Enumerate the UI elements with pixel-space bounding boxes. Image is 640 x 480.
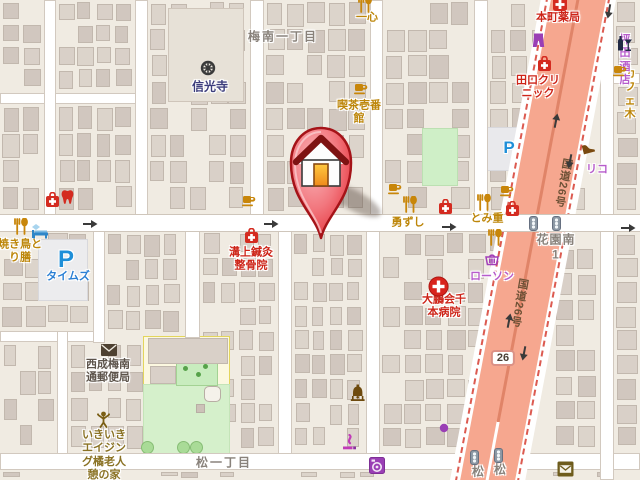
building [204, 233, 220, 254]
road [366, 231, 380, 454]
building [241, 428, 254, 448]
building [259, 332, 274, 351]
building [617, 405, 638, 425]
building [407, 161, 423, 184]
building [312, 379, 327, 397]
building [295, 330, 308, 349]
building [170, 161, 186, 183]
building [313, 283, 328, 301]
building [115, 107, 131, 127]
building [447, 379, 465, 398]
clinic-icon [504, 201, 521, 222]
road [185, 231, 200, 338]
building [97, 134, 110, 158]
building [294, 282, 308, 300]
building [146, 285, 160, 305]
restaurant-icon [356, 0, 373, 18]
post2-icon [557, 461, 574, 480]
building [330, 405, 342, 425]
building [4, 345, 16, 366]
building [313, 331, 325, 351]
building [408, 55, 427, 76]
arrow-icon [263, 216, 279, 234]
tooth-icon [60, 189, 75, 211]
restaurant-icon [475, 194, 492, 216]
building [425, 404, 441, 422]
building [24, 69, 41, 85]
building [386, 56, 402, 79]
building [408, 82, 427, 105]
building [295, 428, 307, 445]
area-hanazono-minami: 花園南 1 [536, 232, 575, 261]
building [617, 188, 636, 210]
signal-icon [470, 450, 479, 470]
signal-icon [494, 448, 503, 468]
pharmacy-icon [552, 0, 568, 17]
building [340, 472, 355, 477]
road [93, 231, 105, 343]
building [70, 306, 88, 324]
building [617, 163, 637, 185]
building [230, 135, 246, 158]
building [38, 399, 54, 421]
building [510, 30, 526, 51]
building [59, 107, 73, 131]
building [145, 310, 161, 329]
building [126, 311, 140, 330]
building [426, 330, 442, 350]
clothes-icon [531, 32, 546, 53]
building [296, 403, 310, 422]
building [203, 258, 219, 275]
building [429, 82, 448, 103]
building [578, 426, 595, 447]
building [38, 346, 51, 370]
building [386, 83, 404, 106]
building [405, 429, 421, 448]
building [116, 4, 131, 21]
building [3, 25, 19, 41]
building [347, 354, 362, 371]
building [330, 379, 343, 399]
building [348, 259, 363, 277]
building [618, 138, 639, 157]
road [278, 231, 292, 454]
landuse-area [203, 364, 208, 369]
building [404, 330, 421, 349]
building [426, 379, 445, 399]
area-umeminami-1chome: 梅南一丁目 [248, 30, 318, 45]
label-ikiiki-aging-tachibana-home: いきいき エイジン グ橘老人 憩の家 [82, 429, 126, 480]
building [347, 282, 359, 300]
building [312, 258, 324, 276]
building [407, 109, 424, 128]
building [190, 187, 207, 210]
arrow-icon [82, 216, 98, 234]
building [108, 310, 124, 329]
label-lawson: ローソン [470, 270, 514, 283]
building [60, 160, 75, 182]
building [170, 135, 184, 157]
building [385, 109, 402, 129]
building [347, 307, 361, 325]
building [617, 355, 639, 375]
clinic-icon [44, 192, 61, 213]
building [556, 377, 572, 396]
building [259, 404, 273, 422]
building [405, 380, 424, 401]
building [78, 106, 92, 129]
building [241, 379, 256, 400]
building [20, 371, 36, 395]
building [259, 306, 272, 324]
building [578, 275, 597, 296]
arrow-icon [513, 343, 534, 362]
building [448, 355, 464, 375]
building [490, 81, 506, 104]
building [618, 427, 636, 444]
building [287, 83, 304, 103]
building [491, 30, 505, 53]
building [266, 55, 284, 75]
road [44, 0, 56, 216]
landuse-area [148, 338, 228, 364]
building [331, 258, 343, 275]
label-riko: リコ [586, 163, 608, 176]
building [577, 249, 593, 269]
building [287, 4, 304, 27]
building [425, 235, 444, 256]
building [115, 48, 130, 65]
building [163, 311, 179, 332]
building [404, 282, 422, 300]
building [152, 82, 166, 104]
building [77, 133, 91, 157]
building [71, 345, 86, 369]
building [126, 399, 141, 421]
building [511, 4, 526, 27]
building [387, 30, 405, 52]
building [259, 283, 275, 301]
building [405, 355, 421, 373]
building [295, 306, 308, 327]
area-matsu-1chome: 松一丁目 [196, 456, 252, 471]
building [96, 25, 110, 42]
building [20, 425, 32, 445]
building [116, 186, 132, 207]
building [97, 4, 113, 21]
building [384, 404, 402, 424]
building [115, 26, 128, 43]
clinic-icon [243, 228, 260, 249]
building [23, 188, 40, 210]
building [295, 379, 307, 398]
building [127, 286, 140, 307]
label-mizokami-seikotsuin: 溝上鍼灸 整骨院 [229, 247, 273, 274]
times-parking-p: P [58, 246, 74, 274]
building [430, 3, 448, 24]
building [452, 109, 469, 129]
destination-pin house-icon[interactable] [278, 116, 364, 242]
building [577, 401, 595, 420]
building [556, 350, 575, 371]
shoe-icon [579, 139, 598, 160]
building [115, 160, 130, 183]
building [3, 283, 22, 300]
building [578, 300, 594, 321]
building [295, 354, 310, 373]
building [3, 47, 19, 64]
building [241, 403, 255, 423]
landuse-area [196, 372, 201, 377]
building [230, 109, 246, 129]
building [59, 4, 75, 20]
dot-icon [439, 420, 449, 438]
landuse-area [150, 366, 176, 384]
building [3, 187, 18, 209]
building [556, 325, 574, 346]
building [26, 306, 46, 326]
building [383, 257, 399, 277]
building [3, 472, 20, 477]
arrow-icon [441, 219, 457, 237]
building [164, 234, 177, 255]
building [383, 428, 401, 447]
building [259, 356, 272, 375]
building [151, 4, 166, 25]
signal-icon [552, 216, 561, 236]
building [617, 330, 637, 350]
building [97, 47, 112, 64]
building [163, 259, 177, 280]
building [307, 55, 322, 76]
building [209, 161, 224, 183]
building [152, 55, 167, 77]
building [161, 472, 178, 477]
label-isami-zushi: 勇ずし [392, 216, 425, 229]
building [24, 48, 41, 65]
building [617, 2, 635, 22]
building [385, 160, 401, 183]
building [239, 282, 255, 302]
building [617, 282, 638, 303]
laundry-icon [369, 457, 385, 479]
building [241, 356, 255, 377]
liquor-icon [615, 35, 633, 57]
landuse-area [183, 366, 188, 371]
building [108, 234, 121, 254]
building [468, 283, 484, 303]
arrow-icon [598, 2, 619, 21]
restaurant-icon [486, 229, 503, 251]
road [135, 0, 148, 216]
building [97, 108, 113, 131]
building [429, 55, 448, 78]
building [348, 404, 360, 425]
label-nishinari-bainan-post-office: 西成梅南 通郵便局 [86, 359, 130, 386]
building [116, 69, 132, 86]
building [77, 160, 90, 182]
building [78, 188, 94, 210]
building [203, 282, 216, 303]
label-taguchi-clinic: 田口クリ ニック [516, 75, 560, 102]
building [107, 285, 120, 306]
arrow-icon [500, 311, 521, 330]
building [330, 330, 343, 350]
building [578, 376, 595, 397]
building [115, 135, 131, 155]
building [71, 372, 85, 393]
building [145, 259, 158, 279]
building [150, 29, 165, 50]
building [511, 56, 528, 75]
building [23, 107, 39, 131]
building [150, 108, 168, 130]
building [126, 260, 139, 280]
building [447, 330, 466, 349]
cafe-icon [352, 81, 369, 101]
building [220, 472, 234, 477]
building [266, 82, 284, 104]
building [209, 135, 226, 155]
building [330, 354, 345, 375]
building [59, 71, 73, 90]
basket-icon [484, 252, 500, 271]
building [328, 29, 346, 51]
building [492, 56, 507, 79]
building [23, 25, 40, 43]
building [4, 108, 19, 132]
hospital-icon [428, 276, 449, 302]
elderly-icon [95, 410, 112, 433]
building [258, 427, 273, 446]
building [151, 135, 166, 157]
building [452, 82, 468, 103]
road [474, 0, 488, 216]
restaurant-icon [12, 218, 29, 240]
building [469, 234, 486, 253]
route26-badge: 26 [491, 350, 515, 366]
post-icon [100, 343, 118, 362]
building [312, 355, 325, 373]
building [164, 284, 180, 303]
arrow-icon [559, 151, 580, 170]
building [404, 404, 421, 425]
building [239, 330, 253, 350]
bell-icon [349, 384, 366, 407]
building [425, 354, 443, 373]
building [77, 47, 93, 66]
building [3, 160, 19, 182]
building [451, 2, 468, 25]
building [405, 234, 420, 255]
building [181, 472, 198, 478]
building [77, 2, 90, 19]
building [349, 56, 365, 77]
building [556, 401, 575, 420]
arrow-icon [547, 111, 568, 130]
landuse-area [204, 386, 221, 402]
building [330, 307, 342, 325]
building [383, 307, 400, 326]
building [382, 355, 400, 374]
temple-icon [199, 59, 217, 82]
building [617, 258, 638, 277]
building [617, 379, 637, 400]
building [240, 308, 256, 326]
road [0, 331, 105, 342]
building [191, 108, 207, 131]
building [577, 350, 595, 371]
arrow-icon [620, 220, 636, 238]
building [616, 307, 635, 328]
clinic-icon [437, 199, 454, 220]
map-canvas[interactable]: 26 梅南一丁目花園南 1松一丁目松松信光寺一心喫茶壱番 館焼き鳥と り膳勇ずし… [0, 0, 640, 480]
building [348, 330, 363, 350]
cafe-icon [498, 183, 515, 203]
building [38, 371, 51, 394]
clinic-icon [536, 56, 553, 77]
road [0, 93, 148, 104]
building [301, 472, 317, 478]
building [408, 30, 427, 52]
building [267, 3, 282, 25]
building [3, 3, 19, 19]
building [313, 427, 325, 445]
building [150, 161, 164, 181]
building [79, 69, 92, 87]
building [329, 3, 345, 26]
building [429, 30, 447, 50]
building [329, 283, 343, 301]
building [4, 399, 17, 420]
road [57, 331, 68, 454]
building [59, 134, 73, 156]
building [127, 235, 141, 254]
building [405, 306, 423, 325]
building [59, 47, 75, 64]
building [78, 26, 94, 43]
signal-icon [529, 216, 538, 236]
building [312, 307, 324, 326]
building [71, 398, 88, 421]
building [556, 426, 574, 446]
landuse-area [422, 128, 458, 186]
cafe-icon [611, 63, 628, 83]
landuse-area [196, 404, 205, 413]
building [144, 235, 160, 257]
building [96, 69, 110, 86]
cafe-icon [240, 193, 257, 213]
building [97, 160, 110, 183]
smoke-icon [342, 434, 357, 456]
building [348, 29, 365, 51]
building [48, 305, 68, 322]
building [2, 134, 20, 157]
building [23, 134, 37, 154]
building [230, 162, 244, 185]
building [2, 307, 22, 327]
building [327, 55, 345, 78]
hotel-icon [31, 223, 49, 244]
restaurant-icon [401, 196, 418, 218]
building [170, 187, 185, 209]
building [307, 2, 325, 23]
lot-parking-p: P [503, 138, 514, 158]
building [221, 283, 236, 304]
